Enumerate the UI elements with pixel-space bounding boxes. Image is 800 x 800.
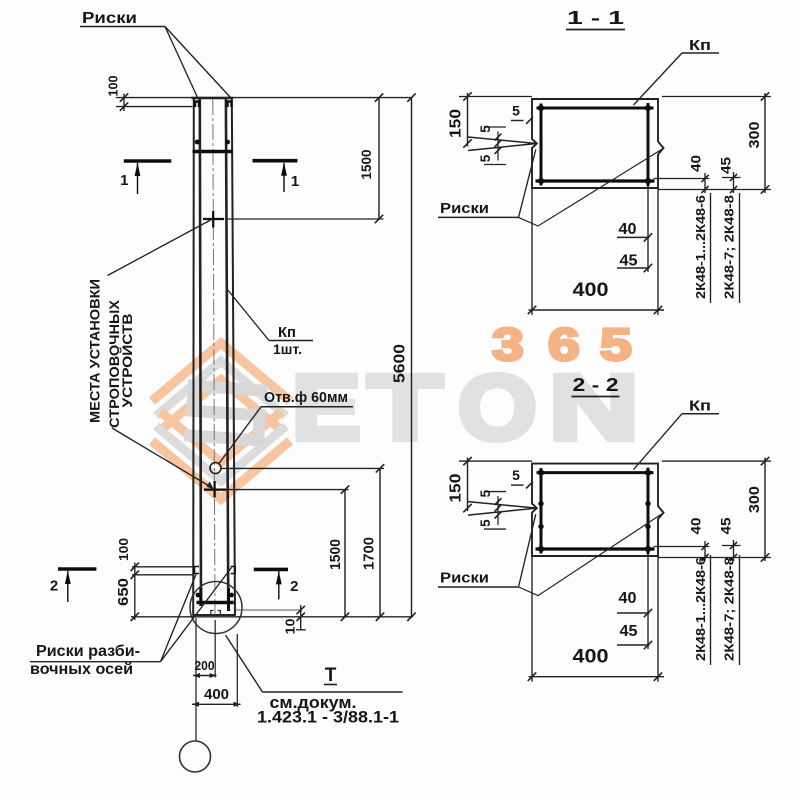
svg-text:1: 1 (291, 173, 299, 190)
svg-text:Риски: Риски (440, 570, 489, 587)
svg-text:5600: 5600 (392, 344, 409, 383)
svg-text:2К48-7; 2К48-8: 2К48-7; 2К48-8 (722, 195, 737, 299)
svg-text:Кп: Кп (689, 37, 711, 54)
svg-text:300: 300 (746, 486, 763, 513)
svg-text:1 - 1: 1 - 1 (567, 8, 624, 28)
svg-text:400: 400 (573, 647, 609, 668)
svg-text:2: 2 (50, 578, 58, 595)
svg-text:200: 200 (195, 659, 215, 673)
svg-text:МЕСТА УСТАНОВКИ: МЕСТА УСТАНОВКИ (88, 279, 103, 423)
svg-text:Риски разби-: Риски разби- (36, 643, 140, 660)
svg-text:1шт.: 1шт. (273, 342, 302, 357)
svg-text:2 - 2: 2 - 2 (573, 375, 619, 395)
svg-text:1500: 1500 (328, 539, 344, 570)
svg-text:5: 5 (600, 319, 632, 370)
svg-text:2К48-7; 2К48-8: 2К48-7; 2К48-8 (722, 557, 737, 661)
svg-text:45: 45 (620, 253, 638, 270)
svg-text:Риски: Риски (82, 10, 137, 27)
svg-text:5: 5 (512, 467, 520, 483)
svg-text:40: 40 (619, 590, 637, 607)
svg-text:N: N (549, 357, 639, 460)
svg-text:2К48-1...2К48-6: 2К48-1...2К48-6 (693, 557, 708, 661)
svg-text:3: 3 (492, 319, 524, 370)
svg-text:5: 5 (512, 103, 520, 119)
svg-text:40: 40 (688, 517, 704, 534)
svg-text:45: 45 (620, 623, 638, 640)
svg-text:Кп: Кп (278, 324, 296, 341)
svg-text:6: 6 (548, 319, 580, 370)
svg-text:45: 45 (718, 157, 734, 174)
svg-text:1700: 1700 (362, 537, 378, 570)
svg-text:2: 2 (290, 578, 298, 595)
svg-text:2К48-1...2К48-6: 2К48-1...2К48-6 (693, 195, 708, 299)
svg-text:5: 5 (478, 489, 493, 497)
svg-text:300: 300 (746, 122, 763, 149)
svg-text:O: O (458, 356, 537, 459)
svg-text:УСТРОЙСТВ: УСТРОЙСТВ (120, 313, 135, 407)
svg-text:5: 5 (478, 154, 493, 162)
svg-text:10: 10 (283, 619, 298, 635)
svg-text:Риски: Риски (440, 200, 489, 217)
svg-text:Т: Т (325, 665, 337, 686)
svg-text:400: 400 (204, 687, 229, 703)
svg-text:100: 100 (107, 75, 121, 96)
svg-text:Кп: Кп (689, 398, 711, 415)
svg-text:40: 40 (688, 155, 704, 172)
svg-text:вочных осей: вочных осей (30, 661, 133, 678)
svg-text:400: 400 (573, 280, 609, 301)
svg-text:650: 650 (116, 578, 132, 606)
svg-text:5: 5 (478, 125, 493, 133)
svg-text:150: 150 (448, 474, 465, 503)
svg-text:100: 100 (116, 538, 131, 561)
svg-text:Отв.ф 60мм: Отв.ф 60мм (264, 390, 348, 406)
svg-text:5: 5 (478, 519, 493, 527)
svg-text:45: 45 (718, 517, 734, 534)
svg-text:150: 150 (448, 109, 465, 138)
svg-text:1.423.1 - 3/88.1-1: 1.423.1 - 3/88.1-1 (257, 709, 399, 727)
svg-text:1500: 1500 (358, 149, 374, 179)
svg-text:1: 1 (120, 172, 128, 189)
svg-text:40: 40 (619, 221, 637, 238)
